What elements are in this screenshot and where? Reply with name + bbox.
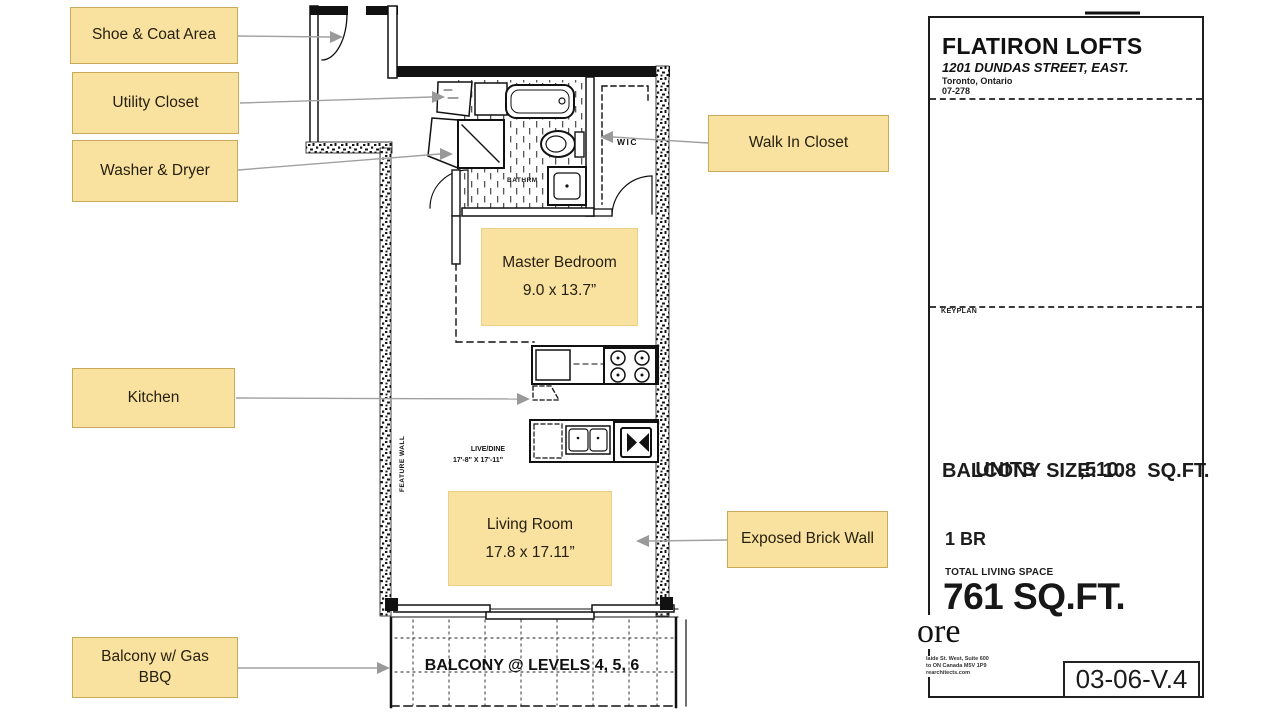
callout-walk-in-closet: Walk In Closet <box>708 115 889 172</box>
fridge <box>536 350 570 380</box>
balcony: BALCONY @ LEVELS 4, 5, 6 <box>391 618 686 707</box>
room-label-living-room: Living Room 17.8 x 17.11” <box>448 491 612 586</box>
project-address: 1201 DUNDAS STREET, EAST. <box>942 60 1129 75</box>
project-city: Toronto, Ontario <box>942 76 1012 86</box>
room-label-master-bedroom: Master Bedroom 9.0 x 13.7” <box>481 228 638 326</box>
callout-kitchen: Kitchen <box>72 368 235 428</box>
bath-cabinet <box>475 83 507 115</box>
callout-shoe-coat-area: Shoe & Coat Area <box>70 7 238 64</box>
floor-plan: BATHRM WIC <box>306 6 686 707</box>
live-dine-dims: 17'-8" X 17'-11" <box>453 457 503 464</box>
callout-washer-dryer: Washer & Dryer <box>72 140 238 202</box>
floor-plan-slide: BATHRM WIC <box>0 0 1280 720</box>
kitchen <box>530 346 658 462</box>
room-name: Master Bedroom <box>502 249 617 277</box>
callout-label: Shoe & Coat Area <box>92 25 216 46</box>
top-wall <box>397 66 670 77</box>
feature-wall-label: FEATURE WALL <box>399 436 406 492</box>
column-marker <box>385 598 398 611</box>
walk-in-closet: WIC <box>594 86 652 216</box>
wic-door-arc <box>612 176 652 216</box>
exposed-brick-wall <box>656 66 669 616</box>
balcony-door-wall <box>385 597 678 619</box>
callout-balcony-bbq: Balcony w/ Gas BBQ <box>72 637 238 698</box>
balcony-size: BALCONY SIZE: 108 SQ.FT. <box>942 460 1209 483</box>
bedroom-type: 1 BR <box>945 529 986 550</box>
keyplan-label: KEYPLAN <box>941 308 977 315</box>
divider <box>930 98 1202 100</box>
callout-label: Balcony w/ Gas BBQ <box>95 647 215 689</box>
project-number: 07-278 <box>942 86 970 96</box>
live-dine-label: LIVE/DINE <box>471 446 506 453</box>
room-dims: 17.8 x 17.11” <box>485 539 574 567</box>
utility-closet <box>437 82 472 116</box>
architect-address: laide St. West, Suite 600 to ON Canada M… <box>926 656 989 677</box>
column-marker <box>660 597 673 610</box>
textured-wall-top <box>306 142 392 153</box>
feature-wall <box>380 148 391 616</box>
drawing-number: 03-06-V.4 <box>1076 664 1188 695</box>
info-panel: FLATIRON LOFTS 1201 DUNDAS STREET, EAST.… <box>928 16 1204 698</box>
architect-logo-fragment: ore <box>917 615 963 649</box>
callout-exposed-brick-wall: Exposed Brick Wall <box>727 511 888 568</box>
room-dims: 9.0 x 13.7” <box>523 277 596 305</box>
callout-label: Utility Closet <box>112 93 198 114</box>
project-title: FLATIRON LOFTS <box>942 33 1143 60</box>
callout-label: Walk In Closet <box>749 133 848 154</box>
callout-label: Kitchen <box>128 388 180 409</box>
total-living-space-value: 761 SQ.FT. <box>943 576 1125 618</box>
drawing-number-box: 03-06-V.4 <box>1063 661 1200 698</box>
bathroom-label: BATHRM <box>507 177 538 184</box>
entry-vestibule <box>310 6 398 148</box>
callout-label: Washer & Dryer <box>100 161 210 182</box>
callout-label: Exposed Brick Wall <box>741 529 874 550</box>
room-name: Living Room <box>487 511 573 539</box>
callout-utility-closet: Utility Closet <box>72 72 239 134</box>
balcony-label: BALCONY @ LEVELS 4, 5, 6 <box>425 657 640 674</box>
